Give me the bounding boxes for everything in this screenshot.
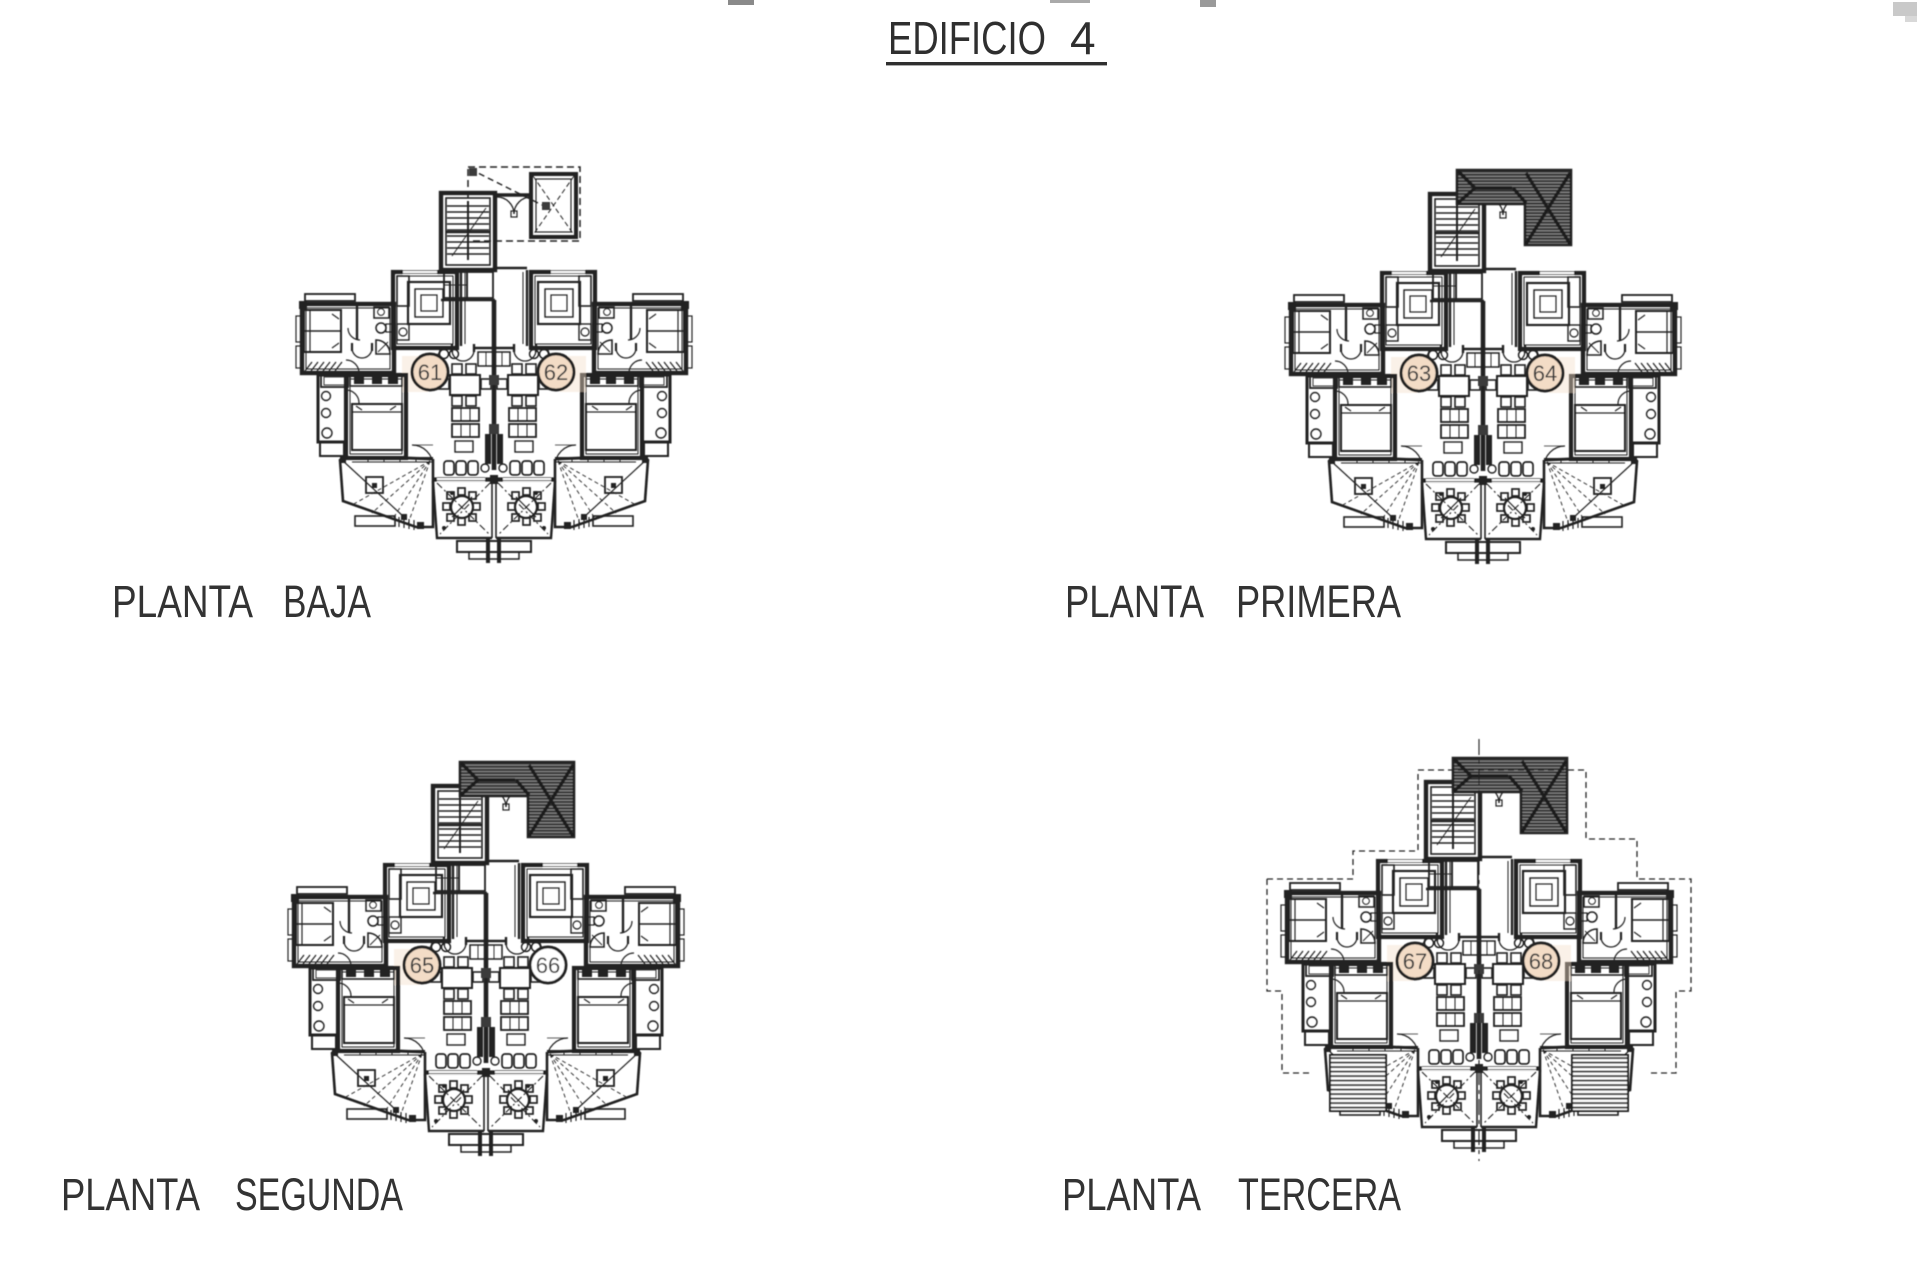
svg-text:67: 67 bbox=[1403, 949, 1427, 974]
svg-text:PLANTA: PLANTA bbox=[112, 576, 253, 627]
svg-text:4: 4 bbox=[1070, 12, 1096, 64]
svg-text:66: 66 bbox=[536, 953, 560, 978]
svg-text:BAJA: BAJA bbox=[283, 576, 371, 627]
svg-text:PLANTA: PLANTA bbox=[1065, 576, 1204, 627]
svg-text:PLANTA: PLANTA bbox=[1062, 1169, 1201, 1220]
svg-text:65: 65 bbox=[410, 953, 434, 978]
svg-text:PLANTA: PLANTA bbox=[61, 1169, 200, 1220]
svg-text:68: 68 bbox=[1529, 949, 1553, 974]
svg-text:64: 64 bbox=[1533, 361, 1557, 386]
svg-text:TERCERA: TERCERA bbox=[1238, 1169, 1401, 1220]
svg-text:SEGUNDA: SEGUNDA bbox=[235, 1169, 403, 1220]
svg-text:PRIMERA: PRIMERA bbox=[1236, 576, 1401, 627]
svg-text:EDIFICIO: EDIFICIO bbox=[888, 12, 1046, 64]
svg-text:61: 61 bbox=[418, 360, 442, 385]
svg-text:62: 62 bbox=[544, 360, 568, 385]
svg-text:63: 63 bbox=[1407, 361, 1431, 386]
